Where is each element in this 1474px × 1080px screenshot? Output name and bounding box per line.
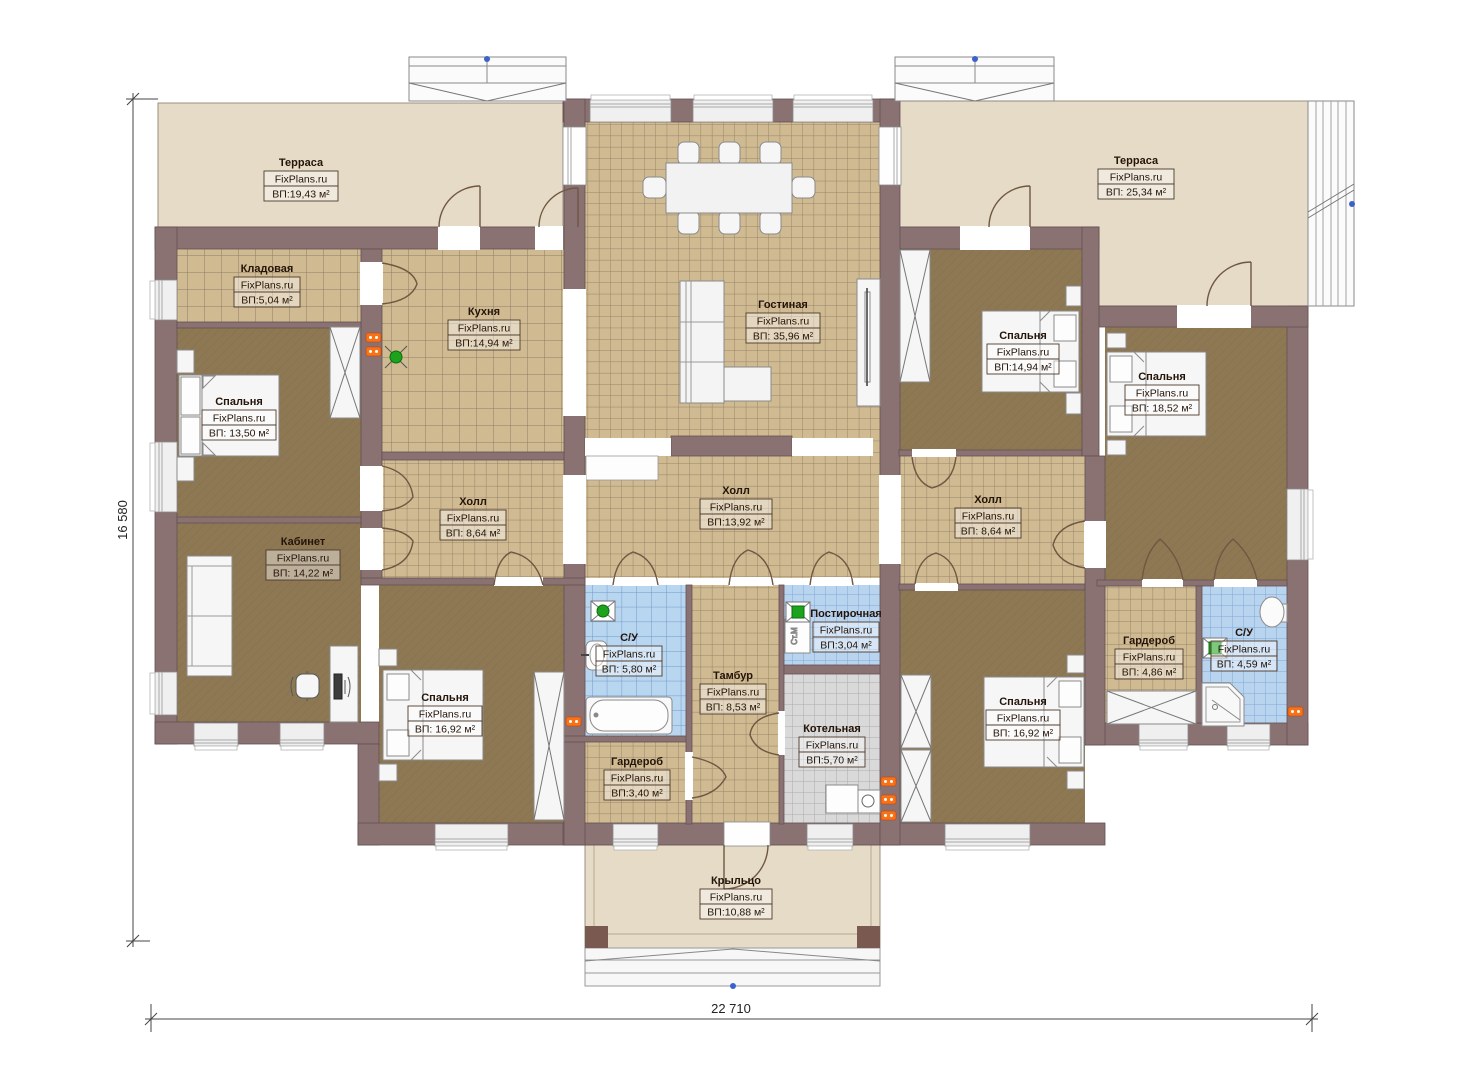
svg-text:ВП: 25,34 м²: ВП: 25,34 м²	[1106, 187, 1167, 199]
svg-text:ВП: 16,92 м²: ВП: 16,92 м²	[993, 728, 1054, 740]
svg-text:Котельная: Котельная	[803, 723, 861, 735]
svg-text:Холл: Холл	[722, 485, 750, 497]
svg-text:ВП:3,04 м²: ВП:3,04 м²	[820, 640, 872, 652]
svg-text:ВП: 18,52 м²: ВП: 18,52 м²	[1132, 403, 1193, 415]
svg-text:FixPlans.ru: FixPlans.ru	[458, 323, 511, 335]
svg-text:Спальня: Спальня	[1138, 371, 1186, 383]
svg-text:FixPlans.ru: FixPlans.ru	[611, 773, 664, 785]
svg-text:FixPlans.ru: FixPlans.ru	[820, 625, 873, 637]
svg-text:Кабинет: Кабинет	[281, 536, 326, 548]
svg-text:С/У: С/У	[1235, 627, 1253, 639]
svg-text:ВП:10,88 м²: ВП:10,88 м²	[707, 907, 765, 919]
svg-text:ВП: 8,53 м²: ВП: 8,53 м²	[706, 702, 761, 714]
svg-text:FixPlans.ru: FixPlans.ru	[1110, 172, 1163, 184]
svg-text:FixPlans.ru: FixPlans.ru	[213, 413, 266, 425]
svg-text:ВП: 8,64 м²: ВП: 8,64 м²	[961, 526, 1016, 538]
svg-text:ВП: 5,80 м²: ВП: 5,80 м²	[602, 664, 657, 676]
svg-text:FixPlans.ru: FixPlans.ru	[710, 502, 763, 514]
svg-text:ВП:13,92 м²: ВП:13,92 м²	[707, 517, 765, 529]
svg-text:FixPlans.ru: FixPlans.ru	[1136, 388, 1189, 400]
svg-text:Гостиная: Гостиная	[758, 299, 808, 311]
svg-text:ВП:14,94 м²: ВП:14,94 м²	[994, 362, 1052, 374]
svg-text:FixPlans.ru: FixPlans.ru	[806, 740, 859, 752]
svg-text:Холл: Холл	[459, 496, 487, 508]
svg-text:Гардероб: Гардероб	[1123, 635, 1175, 647]
svg-text:FixPlans.ru: FixPlans.ru	[1218, 644, 1271, 656]
svg-text:ВП: 16,92 м²: ВП: 16,92 м²	[415, 724, 476, 736]
svg-text:Постирочная: Постирочная	[810, 608, 881, 620]
svg-text:ВП:5,70 м²: ВП:5,70 м²	[806, 755, 858, 767]
svg-text:FixPlans.ru: FixPlans.ru	[603, 649, 656, 661]
svg-text:Терраса: Терраса	[279, 157, 324, 169]
svg-text:ВП: 13,50 м²: ВП: 13,50 м²	[209, 428, 270, 440]
svg-text:22 710: 22 710	[711, 1001, 751, 1016]
svg-text:FixPlans.ru: FixPlans.ru	[275, 174, 328, 186]
svg-text:Спальня: Спальня	[999, 330, 1047, 342]
svg-text:Ст.М: Ст.М	[790, 627, 799, 645]
svg-text:ВП:14,94 м²: ВП:14,94 м²	[455, 338, 513, 350]
svg-text:FixPlans.ru: FixPlans.ru	[757, 316, 810, 328]
svg-text:FixPlans.ru: FixPlans.ru	[277, 553, 330, 565]
svg-text:FixPlans.ru: FixPlans.ru	[997, 713, 1050, 725]
svg-text:Крыльцо: Крыльцо	[711, 875, 761, 887]
svg-text:Кладовая: Кладовая	[241, 263, 294, 275]
svg-text:ВП: 4,86 м²: ВП: 4,86 м²	[1122, 667, 1177, 679]
svg-text:ВП: 8,64 м²: ВП: 8,64 м²	[446, 528, 501, 540]
svg-text:Спальня: Спальня	[421, 692, 469, 704]
svg-text:ВП: 35,96 м²: ВП: 35,96 м²	[753, 331, 814, 343]
svg-text:ВП: 14,22 м²: ВП: 14,22 м²	[273, 568, 334, 580]
svg-text:ВП: 4,59 м²: ВП: 4,59 м²	[1217, 659, 1272, 671]
svg-text:Холл: Холл	[974, 494, 1002, 506]
svg-text:FixPlans.ru: FixPlans.ru	[997, 347, 1050, 359]
svg-text:Спальня: Спальня	[215, 396, 263, 408]
svg-text:FixPlans.ru: FixPlans.ru	[707, 687, 760, 699]
svg-text:ВП:5,04 м²: ВП:5,04 м²	[241, 295, 293, 307]
svg-text:Терраса: Терраса	[1114, 155, 1159, 167]
svg-text:Кухня: Кухня	[468, 306, 500, 318]
svg-text:FixPlans.ru: FixPlans.ru	[419, 709, 472, 721]
svg-text:FixPlans.ru: FixPlans.ru	[962, 511, 1015, 523]
svg-text:16 580: 16 580	[115, 500, 130, 540]
svg-text:FixPlans.ru: FixPlans.ru	[447, 513, 500, 525]
svg-text:ВП:3,40 м²: ВП:3,40 м²	[611, 788, 663, 800]
svg-text:FixPlans.ru: FixPlans.ru	[710, 892, 763, 904]
svg-text:Тамбур: Тамбур	[713, 670, 753, 682]
svg-text:FixPlans.ru: FixPlans.ru	[1123, 652, 1176, 664]
svg-text:FixPlans.ru: FixPlans.ru	[241, 280, 294, 292]
svg-text:С/У: С/У	[620, 632, 638, 644]
svg-text:ВП:19,43 м²: ВП:19,43 м²	[272, 189, 330, 201]
svg-text:Спальня: Спальня	[999, 696, 1047, 708]
svg-text:Гардероб: Гардероб	[611, 756, 663, 768]
